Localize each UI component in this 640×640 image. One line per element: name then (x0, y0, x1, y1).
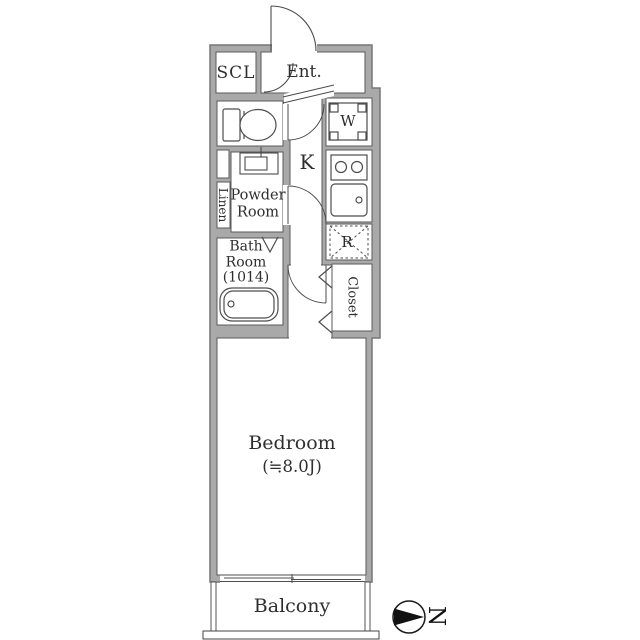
bathtub-icon (220, 288, 278, 321)
bath-room-label: Bath Room (1014) (223, 239, 270, 286)
floor-plan: SCL Ent. K W R Powder Room Linen Bath Ro… (0, 0, 640, 640)
powder-room-label: Powder Room (230, 187, 285, 220)
kitchen-sink-icon (331, 184, 367, 216)
floor-plan-drawing (0, 0, 640, 640)
window-icon (220, 574, 365, 583)
entrance-label: Ent. (286, 62, 322, 82)
hall-kitchen (290, 95, 322, 265)
balcony-label: Balcony (254, 595, 330, 617)
bedroom-label: Bedroom (≒8.0J) (248, 431, 335, 477)
stove-icon (331, 155, 367, 180)
compass-icon (393, 601, 425, 633)
kitchen-label: K (300, 150, 315, 174)
linen-label: Linen (216, 188, 230, 222)
fridge-label: R (341, 233, 352, 251)
toilet-icon (223, 109, 276, 141)
compass-north-label: N (423, 606, 449, 626)
closet-label: Closet (345, 276, 360, 318)
room-storage (217, 150, 229, 178)
washer-label: W (340, 112, 355, 130)
scl-label: SCL (217, 63, 256, 83)
